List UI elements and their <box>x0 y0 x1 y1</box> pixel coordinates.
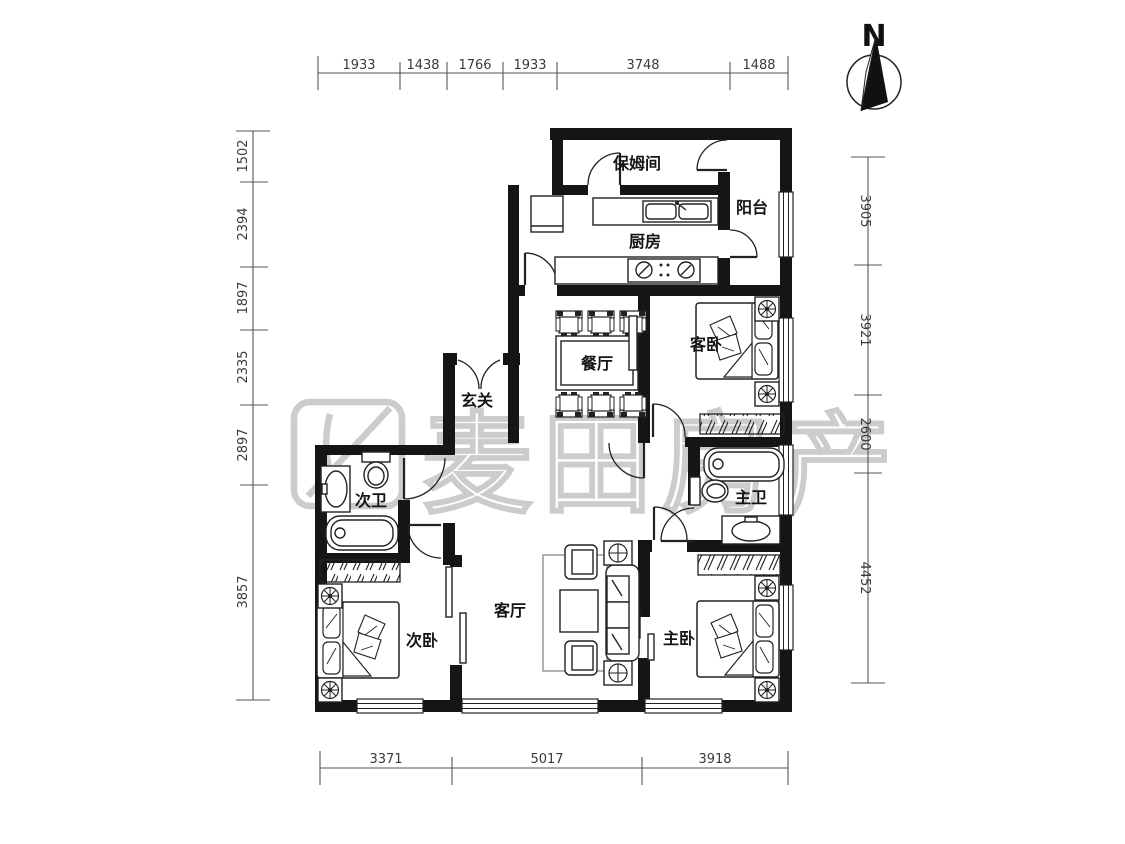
dining-chair <box>588 392 614 417</box>
bathtub-icon <box>704 448 784 481</box>
plant-table <box>604 541 632 565</box>
master-bed <box>697 601 779 677</box>
dim-top-3: 1933 <box>513 58 546 73</box>
dim-left-1: 2394 <box>236 207 251 240</box>
room-label-balcony: 阳台 <box>736 198 768 217</box>
armchair <box>565 641 597 675</box>
toilet-icon <box>690 477 728 505</box>
dim-left-3: 2335 <box>236 350 251 383</box>
dim-top-1: 1438 <box>406 58 439 73</box>
gas-stove <box>628 259 700 282</box>
second-bed <box>317 602 399 678</box>
dim-right-0: 3905 <box>857 194 872 227</box>
nightstand-lamp <box>318 678 342 702</box>
dim-top-2: 1766 <box>458 58 491 73</box>
living-room-furniture <box>543 541 639 685</box>
dim-left-2: 1897 <box>236 281 251 314</box>
window-living <box>462 699 598 713</box>
second-bedroom-furniture <box>317 584 399 702</box>
nightstand-lamp <box>318 584 342 608</box>
nightstand-lamp <box>755 576 779 600</box>
nightstand-lamp <box>755 382 779 406</box>
dim-top-5: 1488 <box>742 58 775 73</box>
sofa <box>606 565 639 661</box>
washbasin-icon <box>321 466 350 512</box>
kitchen-sink <box>643 201 711 222</box>
dining-chair <box>620 392 646 417</box>
watermark-text: 麦田房产 <box>422 401 902 529</box>
room-label-living: 客厅 <box>494 601 526 620</box>
nightstand-lamp <box>755 678 779 702</box>
window-balcony <box>779 192 793 257</box>
dim-bottom-1: 5017 <box>530 752 563 767</box>
master-bedroom-furniture <box>697 576 779 702</box>
toilet-icon <box>362 452 390 488</box>
guest-closet <box>700 414 784 434</box>
dim-left-0: 1502 <box>236 139 251 172</box>
coffee-table <box>560 590 598 632</box>
dimension-bottom: 3371 5017 3918 <box>320 751 788 785</box>
room-label-dining: 餐厅 <box>580 354 613 373</box>
second-bedroom-closet <box>320 560 400 582</box>
dimension-left: 1502 2394 1897 2335 2897 3857 <box>236 131 270 700</box>
room-label-second-bath: 次卫 <box>355 491 387 510</box>
window-master-bedroom <box>779 585 793 650</box>
nightstand-lamp <box>755 297 779 321</box>
room-label-master-bath: 主卫 <box>735 488 767 507</box>
compass: N <box>847 19 901 111</box>
dim-top-0: 1933 <box>342 58 375 73</box>
window-guest-bedroom <box>779 318 793 402</box>
window-second-bedroom <box>357 699 423 713</box>
plant-table <box>604 661 632 685</box>
dim-left-5: 3857 <box>236 575 251 608</box>
dim-left-4: 2897 <box>236 428 251 461</box>
window-master-bedroom-south <box>645 699 722 713</box>
dim-right-3: 4452 <box>857 561 872 594</box>
dining-chair <box>556 392 582 417</box>
armchair <box>565 545 597 579</box>
room-label-kitchen: 厨房 <box>629 232 661 251</box>
dim-right-2: 2600 <box>857 417 872 450</box>
room-label-master-bedroom: 主卧 <box>663 629 695 648</box>
radiator <box>629 316 637 370</box>
room-label-guest-bedroom: 客卧 <box>690 335 722 354</box>
dim-bottom-0: 3371 <box>369 752 402 767</box>
floor-plan-page: 麦田房产 <box>0 0 1125 844</box>
dim-top-4: 3748 <box>626 58 659 73</box>
living-second-bedroom-sliding-door <box>446 567 466 663</box>
room-label-nanny: 保姆间 <box>612 154 661 173</box>
nanny-balcony-door <box>697 140 727 170</box>
floor-plan-svg: 麦田房产 <box>0 0 1125 844</box>
kitchen-fixtures <box>531 196 718 284</box>
master-closet <box>698 555 780 575</box>
dining-chair <box>556 311 582 336</box>
kitchen-door <box>525 253 557 285</box>
bathtub-icon <box>326 516 398 550</box>
entry-double-door <box>458 360 500 389</box>
dining-chair <box>588 311 614 336</box>
dim-bottom-2: 3918 <box>698 752 731 767</box>
dim-right-1: 3921 <box>857 313 872 346</box>
washbasin-icon <box>722 516 780 544</box>
dimension-top: 1933 1438 1766 1933 3748 1488 <box>318 56 788 90</box>
balcony-door <box>730 230 757 257</box>
room-label-second-bedroom: 次卧 <box>406 631 438 650</box>
room-label-foyer: 玄关 <box>461 391 493 410</box>
second-bedroom-door <box>408 525 441 558</box>
